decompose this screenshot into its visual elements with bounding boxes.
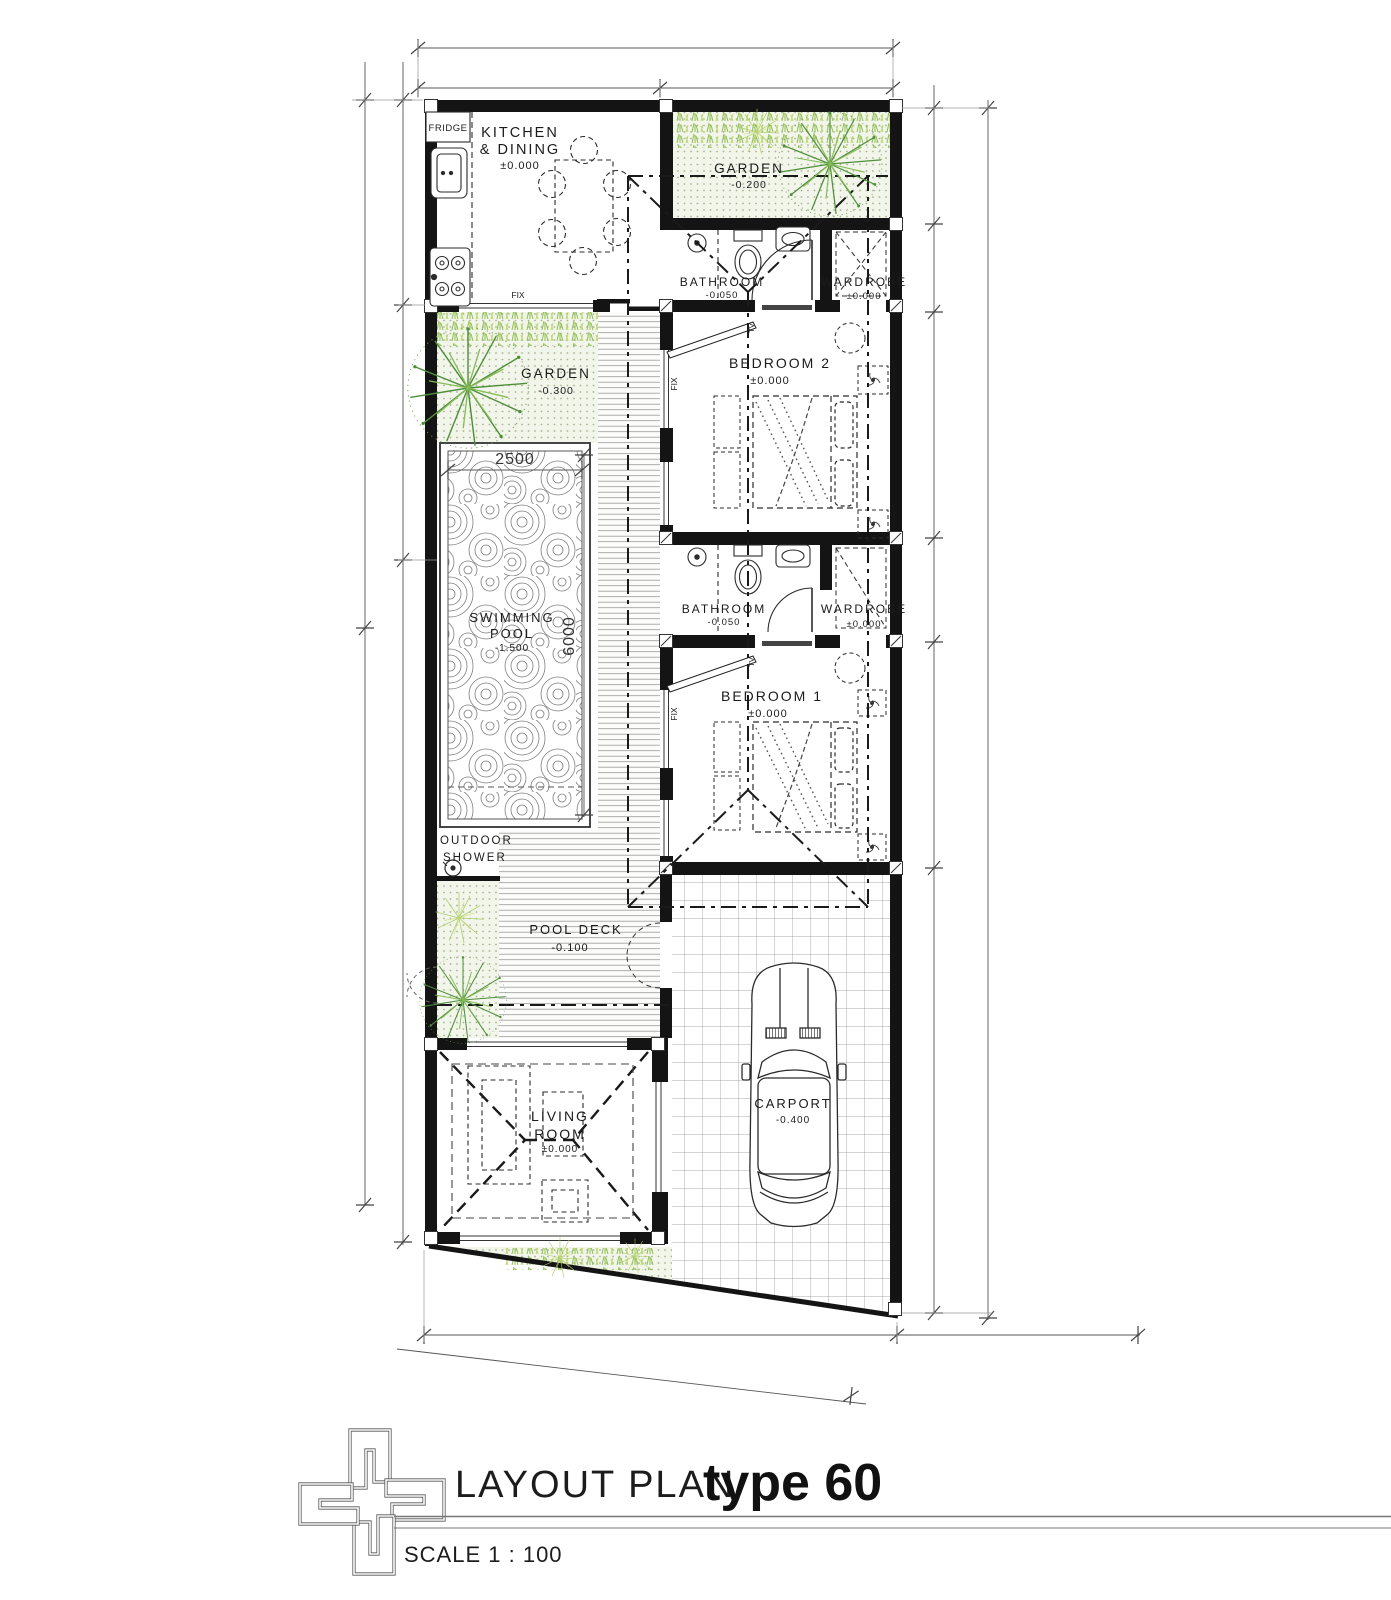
bedroom1-label: BEDROOM 1 bbox=[721, 688, 823, 704]
kitchen-level: ±0.000 bbox=[500, 160, 540, 172]
wardrobe-mid-level: ±0.000 bbox=[847, 619, 882, 630]
outdoor-shower-label-2: SHOWER bbox=[443, 852, 507, 864]
carport-level: -0.400 bbox=[776, 1115, 810, 1126]
living-room-label-1: LIVING bbox=[531, 1108, 589, 1124]
plan-type-label: type 60 bbox=[703, 1454, 882, 1512]
fridge-label: FRIDGE bbox=[429, 123, 468, 134]
kitchen-fix-label: FIX bbox=[511, 290, 525, 300]
garden-top-label: GARDEN bbox=[714, 161, 784, 176]
outdoor-shower-label-1: OUTDOOR bbox=[440, 835, 513, 847]
bedroom2-furniture bbox=[714, 305, 888, 538]
bathroom-mid-level: -0.050 bbox=[708, 617, 741, 628]
wardrobe-mid-fixtures bbox=[836, 548, 886, 628]
bathroom-top-label: BATHROOM bbox=[680, 275, 764, 289]
bedroom2-tv-label: TV bbox=[747, 323, 756, 333]
floor-plan-svg: FRIDGE KITCHEN & DINING ±0.000 FIX GARDE… bbox=[0, 0, 1391, 1600]
garden-top-level: -0.200 bbox=[731, 179, 767, 191]
garden-strip-surface bbox=[434, 881, 499, 1038]
scale-label: SCALE 1 : 100 bbox=[404, 1542, 563, 1567]
bedroom1-fix-label: FIX bbox=[669, 707, 679, 721]
title-block: LAYOUT PLAN type 60 SCALE 1 : 100 bbox=[300, 1430, 1391, 1574]
car bbox=[742, 963, 846, 1227]
bedroom2-fix-label: FIX bbox=[669, 377, 679, 391]
living-room-level: ±0.000 bbox=[542, 1144, 579, 1155]
kitchen-label-1: KITCHEN bbox=[481, 125, 559, 141]
wardrobe-mid-label: WARDROBE bbox=[821, 602, 907, 616]
bathroom-top-level: -0.050 bbox=[706, 290, 739, 301]
pool-label-1: SWIMMING bbox=[469, 610, 554, 625]
garden-side-label: GARDEN bbox=[521, 366, 591, 381]
kitchen-label-2: & DINING bbox=[480, 142, 560, 158]
wardrobe-top-level: ±0.000 bbox=[847, 291, 882, 302]
pool-deck-level: -0.100 bbox=[551, 942, 588, 954]
bedroom1-tv-label: TV bbox=[747, 657, 756, 667]
pool-label-2: POOL bbox=[490, 626, 534, 641]
bathroom-mid-label: BATHROOM bbox=[682, 602, 766, 616]
bedroom1-level: ±0.000 bbox=[748, 708, 788, 720]
page-title: LAYOUT PLAN bbox=[455, 1464, 735, 1506]
pool-width-dim: 2500 bbox=[495, 451, 535, 468]
bedroom2-level: ±0.000 bbox=[750, 375, 790, 387]
title-rule bbox=[394, 1517, 1391, 1529]
pool-deck-label: POOL DECK bbox=[529, 922, 622, 937]
bedroom1-furniture bbox=[714, 641, 886, 860]
garden-side-level: -0.300 bbox=[538, 385, 574, 397]
pool-level: -1.500 bbox=[495, 643, 529, 654]
wardrobe-top-label: WARDROBE bbox=[821, 275, 907, 289]
bedroom2-label: BEDROOM 2 bbox=[729, 355, 831, 371]
drawing-sheet: FRIDGE KITCHEN & DINING ±0.000 FIX GARDE… bbox=[0, 0, 1391, 1600]
carport-label: CARPORT bbox=[754, 1096, 831, 1111]
pool-length-dim: 6000 bbox=[561, 616, 578, 656]
living-room-label-2: ROOM bbox=[534, 1126, 586, 1142]
